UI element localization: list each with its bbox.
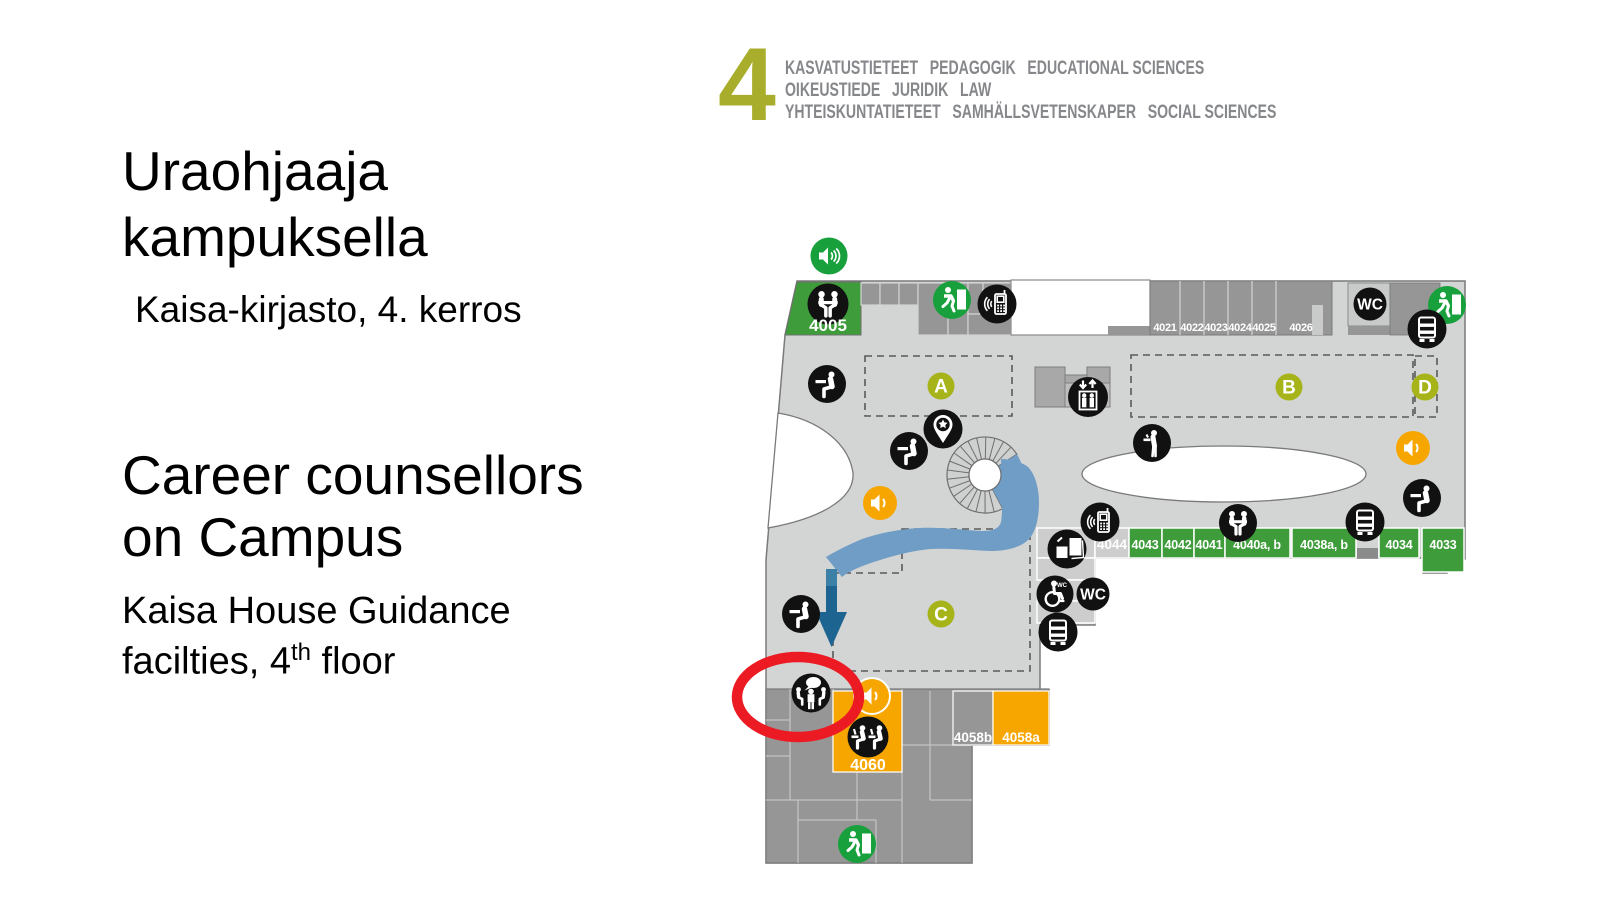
svg-text:D: D [1418, 378, 1432, 399]
svg-text:4025: 4025 [1252, 322, 1275, 334]
svg-text:4021: 4021 [1153, 322, 1176, 334]
svg-text:4034: 4034 [1385, 538, 1412, 552]
svg-text:4005: 4005 [809, 316, 847, 335]
svg-text:C: C [934, 605, 948, 626]
svg-text:4022: 4022 [1180, 322, 1203, 334]
svg-text:4033: 4033 [1429, 538, 1456, 552]
svg-text:4024: 4024 [1228, 322, 1252, 334]
svg-text:4041: 4041 [1195, 538, 1222, 552]
svg-text:4060: 4060 [850, 757, 886, 774]
svg-text:4058a: 4058a [1002, 730, 1040, 745]
svg-text:4058b: 4058b [954, 730, 992, 745]
svg-text:A: A [934, 377, 948, 398]
svg-text:4023: 4023 [1204, 322, 1227, 334]
svg-text:4043: 4043 [1131, 538, 1158, 552]
svg-text:4038a, b: 4038a, b [1300, 538, 1348, 552]
svg-text:4026: 4026 [1289, 322, 1312, 334]
svg-text:4042: 4042 [1164, 538, 1191, 552]
svg-text:B: B [1282, 378, 1296, 399]
